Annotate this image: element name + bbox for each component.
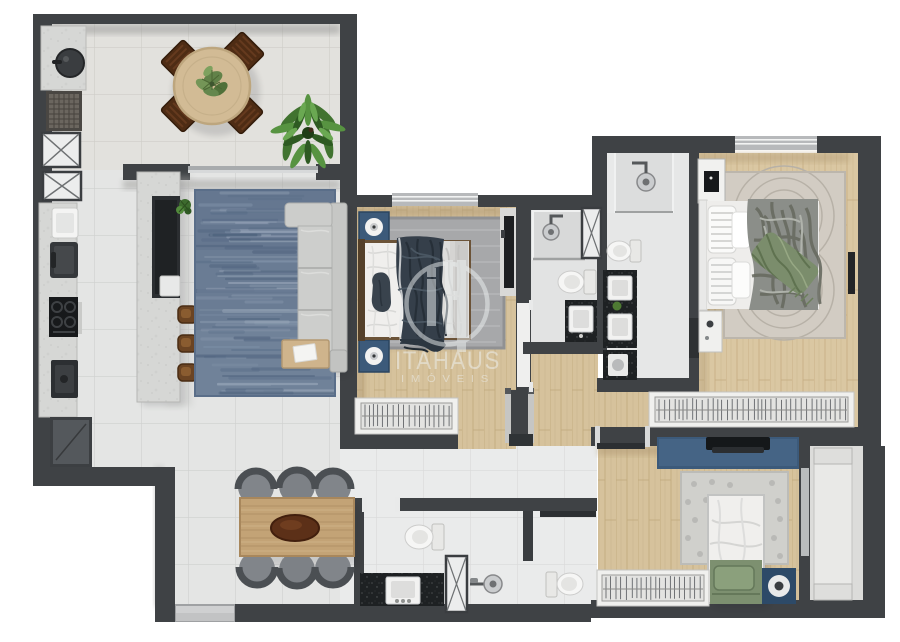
svg-text:ITAHAUS: ITAHAUS bbox=[395, 347, 501, 375]
svg-text:IMÓVEIS: IMÓVEIS bbox=[401, 372, 495, 385]
